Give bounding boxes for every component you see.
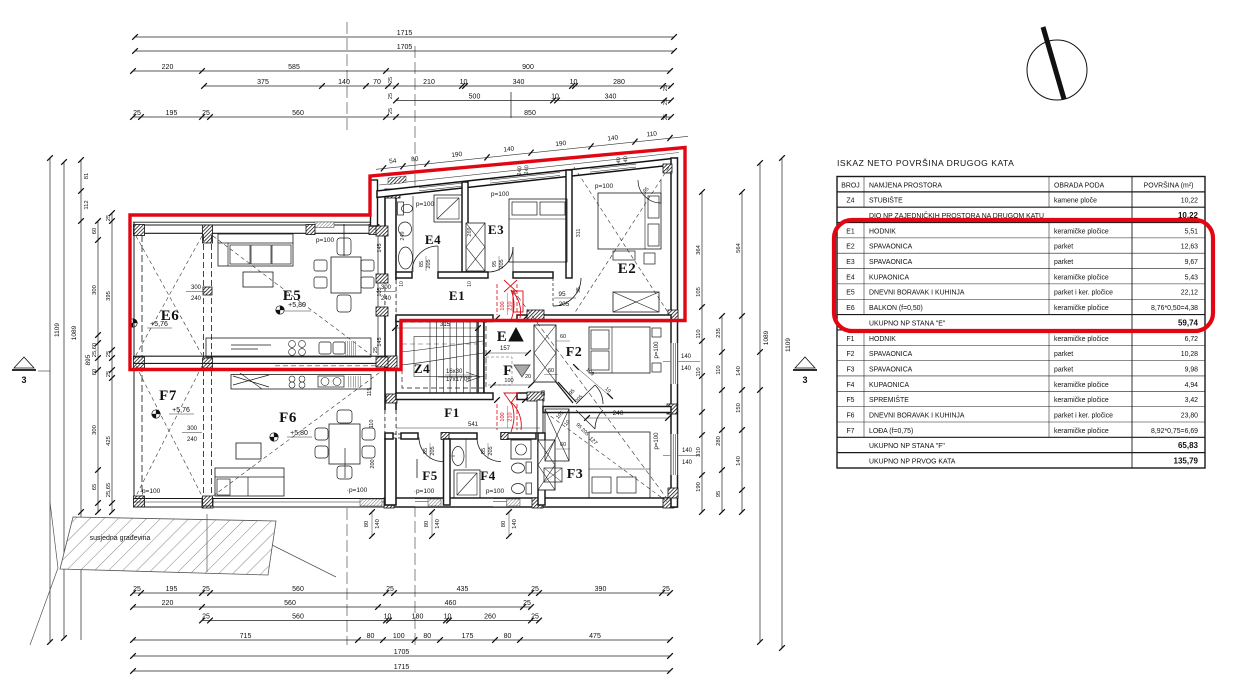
svg-text:395: 395 <box>106 291 112 301</box>
svg-text:9,98: 9,98 <box>1185 366 1199 373</box>
svg-text:280: 280 <box>716 436 722 446</box>
svg-text:E2: E2 <box>846 244 855 251</box>
svg-text:25: 25 <box>202 614 210 621</box>
svg-text:p=100: p=100 <box>416 201 435 208</box>
svg-text:315: 315 <box>440 322 451 328</box>
svg-text:25: 25 <box>388 77 394 83</box>
svg-text:10: 10 <box>444 614 452 621</box>
svg-text:249: 249 <box>400 231 406 240</box>
svg-text:135,79: 135,79 <box>1174 457 1199 466</box>
svg-text:10: 10 <box>551 94 559 101</box>
svg-text:541: 541 <box>468 422 479 428</box>
svg-text:38: 38 <box>541 390 547 396</box>
svg-text:195: 195 <box>166 110 178 117</box>
svg-text:140: 140 <box>375 519 381 529</box>
svg-text:E6: E6 <box>846 305 855 312</box>
svg-text:500: 500 <box>469 94 481 101</box>
svg-text:59,74: 59,74 <box>1178 318 1199 327</box>
svg-text:F: F <box>503 363 513 379</box>
svg-text:F2: F2 <box>566 345 583 360</box>
svg-text:140: 140 <box>607 134 619 142</box>
svg-text:850: 850 <box>524 110 536 117</box>
svg-text:140: 140 <box>682 448 693 454</box>
svg-text:E5: E5 <box>846 290 855 297</box>
svg-text:435: 435 <box>457 586 469 593</box>
svg-text:54: 54 <box>389 158 397 166</box>
svg-text:25: 25 <box>531 586 539 593</box>
svg-text:25: 25 <box>106 351 112 357</box>
svg-text:150: 150 <box>736 403 742 413</box>
svg-text:F1: F1 <box>444 405 459 420</box>
svg-text:60: 60 <box>92 228 98 234</box>
svg-text:BALKON (f=0,50): BALKON (f=0,50) <box>869 305 923 312</box>
svg-text:·p=100: ·p=100 <box>347 487 368 494</box>
svg-text:560: 560 <box>292 614 304 621</box>
svg-text:UKUPNO NP STANA "E": UKUPNO NP STANA "E" <box>869 320 946 327</box>
svg-text:80: 80 <box>423 633 431 640</box>
svg-text:parket: parket <box>1054 244 1073 251</box>
svg-text:1089: 1089 <box>71 325 78 340</box>
svg-text:25: 25 <box>202 110 210 117</box>
svg-text:240: 240 <box>191 296 202 302</box>
svg-text:95: 95 <box>716 491 722 497</box>
svg-text:25: 25 <box>663 85 669 91</box>
svg-text:HODNIK: HODNIK <box>869 336 896 343</box>
svg-text:364: 364 <box>696 244 702 254</box>
svg-text:105: 105 <box>377 287 383 296</box>
svg-text:112: 112 <box>84 200 90 209</box>
svg-text:140: 140 <box>681 354 692 360</box>
svg-text:10,28: 10,28 <box>1181 351 1198 358</box>
svg-text:80: 80 <box>367 633 375 640</box>
svg-text:25: 25 <box>662 586 670 593</box>
svg-text:80: 80 <box>504 633 512 640</box>
svg-text:80: 80 <box>424 521 430 527</box>
svg-text:20: 20 <box>525 374 531 380</box>
svg-text:F1: F1 <box>846 336 854 343</box>
svg-text:1705: 1705 <box>394 649 410 656</box>
svg-text:80: 80 <box>411 156 419 164</box>
svg-text:·p=100: ·p=100 <box>140 488 161 495</box>
svg-text:900: 900 <box>522 64 534 71</box>
svg-text:22,12: 22,12 <box>1181 290 1198 297</box>
svg-text:60: 60 <box>92 369 98 375</box>
svg-text:5,51: 5,51 <box>1185 228 1199 235</box>
svg-text:UKUPNO NP STANA "F": UKUPNO NP STANA "F" <box>869 443 945 450</box>
svg-text:F7: F7 <box>159 388 177 404</box>
svg-text:susjedna građevina: susjedna građevina <box>90 535 151 542</box>
svg-text:23,80: 23,80 <box>1181 412 1198 419</box>
svg-text:5,43: 5,43 <box>1185 274 1199 281</box>
svg-text:190: 190 <box>451 151 463 159</box>
svg-text:205: 205 <box>426 259 432 268</box>
svg-text:80: 80 <box>501 521 507 527</box>
svg-text:KUPAONICA: KUPAONICA <box>869 382 909 389</box>
svg-text:6,72: 6,72 <box>1185 336 1199 343</box>
svg-text:175: 175 <box>462 633 474 640</box>
svg-text:F6: F6 <box>279 410 297 426</box>
svg-text:25,65: 25,65 <box>106 483 112 498</box>
svg-text:10: 10 <box>570 79 578 86</box>
svg-text:205: 205 <box>559 301 570 308</box>
svg-text:240: 240 <box>187 437 198 443</box>
svg-text:F5: F5 <box>422 468 437 483</box>
svg-text:85: 85 <box>481 448 487 454</box>
svg-text:parket i ker. pločice: parket i ker. pločice <box>1054 290 1113 297</box>
svg-text:25: 25 <box>106 371 112 377</box>
svg-text:100: 100 <box>500 412 506 421</box>
svg-text:60: 60 <box>548 368 554 374</box>
svg-text:4,94: 4,94 <box>1185 382 1199 389</box>
svg-text:SPREMIŠTE: SPREMIŠTE <box>869 395 909 404</box>
svg-text:parket: parket <box>1054 259 1073 266</box>
svg-text:475: 475 <box>589 633 601 640</box>
svg-text:POVRŠINA (m²): POVRŠINA (m²) <box>1144 180 1194 189</box>
svg-text:140: 140 <box>512 519 518 529</box>
svg-text:keramičke pločice: keramičke pločice <box>1054 397 1109 404</box>
svg-text:140: 140 <box>736 366 742 376</box>
svg-text:145: 145 <box>377 337 383 346</box>
svg-text:LOĐA (f=0,75): LOĐA (f=0,75) <box>869 428 913 435</box>
svg-text:p=100: p=100 <box>654 341 660 359</box>
svg-text:25: 25 <box>133 110 141 117</box>
svg-text:12,63: 12,63 <box>1181 244 1198 251</box>
svg-text:E4: E4 <box>425 232 441 247</box>
svg-text:300: 300 <box>187 426 198 432</box>
svg-text:16x30: 16x30 <box>446 369 463 375</box>
svg-text:8,76*0,50=4,38: 8,76*0,50=4,38 <box>1151 305 1198 312</box>
svg-text:110: 110 <box>716 365 722 374</box>
svg-text:85: 85 <box>423 448 429 454</box>
svg-text:220: 220 <box>162 600 174 607</box>
svg-text:25: 25 <box>373 347 379 353</box>
svg-text:140: 140 <box>736 456 742 466</box>
svg-text:560: 560 <box>292 586 304 593</box>
svg-text:E: E <box>497 329 508 345</box>
svg-text:E4: E4 <box>846 274 855 281</box>
svg-text:keramičke pločice: keramičke pločice <box>1054 428 1109 435</box>
svg-text:220: 220 <box>162 64 174 71</box>
svg-text:390: 390 <box>595 586 607 593</box>
svg-text:560: 560 <box>284 600 296 607</box>
svg-text:·p=100: ·p=100 <box>414 488 435 495</box>
svg-text:140: 140 <box>524 165 531 175</box>
svg-text:E1: E1 <box>846 228 855 235</box>
svg-text:375: 375 <box>257 79 269 86</box>
svg-text:110: 110 <box>696 329 702 338</box>
svg-text:NAMJENA PROSTORA: NAMJENA PROSTORA <box>869 182 942 189</box>
svg-text:105: 105 <box>696 287 702 297</box>
svg-text:140: 140 <box>338 79 350 86</box>
svg-text:25: 25 <box>388 93 394 99</box>
svg-text:F7: F7 <box>846 428 854 435</box>
svg-text:+5,76: +5,76 <box>150 321 168 328</box>
svg-text:81: 81 <box>84 173 90 179</box>
svg-text:715: 715 <box>240 633 252 640</box>
svg-text:10: 10 <box>460 79 468 86</box>
svg-text:205: 205 <box>499 259 505 268</box>
svg-text:F3: F3 <box>567 467 584 482</box>
svg-text:keramičke pločice: keramičke pločice <box>1054 305 1109 312</box>
svg-text:ISKAZ NETO POVRŠINA DRUGOG KAT: ISKAZ NETO POVRŠINA DRUGOG KATA <box>837 158 1014 168</box>
svg-text:115: 115 <box>367 388 373 397</box>
svg-text:260: 260 <box>484 614 496 621</box>
svg-text:25: 25 <box>106 215 112 221</box>
svg-text:311: 311 <box>576 229 582 238</box>
svg-text:95: 95 <box>576 287 582 293</box>
svg-text:190: 190 <box>696 482 702 492</box>
svg-text:85: 85 <box>419 261 425 267</box>
svg-text:SPAVAONICA: SPAVAONICA <box>869 351 913 358</box>
svg-text:E3: E3 <box>846 259 855 266</box>
svg-text:300: 300 <box>92 285 98 295</box>
svg-text:110: 110 <box>696 367 702 376</box>
svg-text:17x17,06: 17x17,06 <box>446 377 471 383</box>
svg-text:340: 340 <box>513 79 525 86</box>
svg-text:25: 25 <box>663 114 669 120</box>
svg-text:300: 300 <box>191 285 202 291</box>
svg-text:25: 25 <box>531 614 539 621</box>
svg-text:10,22: 10,22 <box>1181 198 1198 205</box>
svg-text:180: 180 <box>412 614 424 621</box>
svg-text:195: 195 <box>166 586 178 593</box>
svg-text:1109: 1109 <box>785 338 792 352</box>
svg-text:+5,76: +5,76 <box>172 407 190 414</box>
svg-text:460: 460 <box>445 600 457 607</box>
svg-text:145: 145 <box>377 243 383 252</box>
svg-text:25: 25 <box>523 600 531 607</box>
svg-text:DNEVNI BORAVAK I KUHINJA: DNEVNI BORAVAK I KUHINJA <box>869 412 965 419</box>
svg-text:parket i ker. pločice: parket i ker. pločice <box>1054 412 1113 419</box>
svg-text:100: 100 <box>393 633 405 640</box>
svg-text:200: 200 <box>370 459 376 468</box>
svg-text:1109: 1109 <box>54 323 61 337</box>
svg-text:Z4: Z4 <box>846 198 854 205</box>
svg-text:UKUPNO NP PRVOG KATA: UKUPNO NP PRVOG KATA <box>869 459 956 466</box>
svg-text:F2: F2 <box>846 351 854 358</box>
svg-text:3: 3 <box>802 375 807 385</box>
svg-text:110: 110 <box>369 420 375 429</box>
svg-text:210: 210 <box>508 301 514 310</box>
svg-text:3: 3 <box>21 375 26 385</box>
svg-text:1715: 1715 <box>394 664 410 671</box>
svg-text:70: 70 <box>373 79 381 86</box>
svg-text:140: 140 <box>682 460 693 466</box>
svg-text:keramičke pločice: keramičke pločice <box>1054 382 1109 389</box>
svg-text:60: 60 <box>560 442 566 448</box>
svg-text:95: 95 <box>558 291 566 298</box>
svg-text:kamene ploče: kamene ploče <box>1054 198 1097 205</box>
svg-text:p=100: p=100 <box>491 191 510 198</box>
svg-text:25: 25 <box>388 108 394 114</box>
svg-text:60: 60 <box>560 334 566 340</box>
svg-text:100: 100 <box>504 378 513 384</box>
svg-text:205: 205 <box>488 446 494 455</box>
svg-text:895: 895 <box>85 354 92 365</box>
svg-text:p=100: p=100 <box>486 488 505 495</box>
svg-text:1715: 1715 <box>397 30 413 37</box>
svg-text:140: 140 <box>435 519 441 529</box>
svg-text:KUPAONICA: KUPAONICA <box>869 274 909 281</box>
svg-text:25,60: 25,60 <box>92 343 98 358</box>
svg-text:205: 205 <box>430 446 436 455</box>
svg-text:560: 560 <box>292 110 304 117</box>
svg-text:3,42: 3,42 <box>1185 397 1199 404</box>
svg-text:8,92*0,75=6,69: 8,92*0,75=6,69 <box>1151 428 1198 435</box>
svg-text:140: 140 <box>503 145 515 153</box>
svg-text:65: 65 <box>92 484 98 490</box>
svg-text:OBRADA PODA: OBRADA PODA <box>1054 182 1105 189</box>
svg-text:parket: parket <box>1054 351 1073 358</box>
svg-text:+5,80: +5,80 <box>288 302 306 309</box>
svg-text:25: 25 <box>202 586 210 593</box>
svg-text:425: 425 <box>106 436 112 446</box>
svg-text:564: 564 <box>736 242 742 252</box>
svg-text:HODNIK: HODNIK <box>869 228 896 235</box>
svg-text:SPAVAONICA: SPAVAONICA <box>869 244 913 251</box>
svg-text:9,67: 9,67 <box>1185 259 1199 266</box>
svg-text:25: 25 <box>133 586 141 593</box>
svg-text:1705: 1705 <box>397 44 413 51</box>
svg-text:95: 95 <box>492 261 498 267</box>
svg-text:F6: F6 <box>846 412 854 419</box>
svg-text:E1: E1 <box>449 288 465 303</box>
svg-text:F3: F3 <box>846 366 854 373</box>
svg-text:235: 235 <box>716 328 722 338</box>
svg-text:p=100: p=100 <box>316 237 335 244</box>
svg-text:300: 300 <box>92 425 98 435</box>
svg-text:240: 240 <box>613 410 624 417</box>
svg-text:10: 10 <box>384 614 392 621</box>
svg-text:parket: parket <box>1054 366 1073 373</box>
svg-text:BROJ: BROJ <box>841 182 859 189</box>
svg-text:1089: 1089 <box>763 330 770 345</box>
svg-text:F4: F4 <box>480 468 495 483</box>
svg-text:210: 210 <box>423 79 435 86</box>
svg-text:10: 10 <box>467 281 473 287</box>
svg-text:E3: E3 <box>488 222 504 237</box>
svg-text:keramičke pločice: keramičke pločice <box>1054 274 1109 281</box>
svg-text:65,83: 65,83 <box>1178 441 1199 450</box>
svg-text:190: 190 <box>555 140 567 148</box>
svg-text:100: 100 <box>500 301 506 310</box>
svg-text:DNEVNI BORAVAK I KUHINJA: DNEVNI BORAVAK I KUHINJA <box>869 290 965 297</box>
svg-text:157: 157 <box>500 346 511 352</box>
svg-text:140: 140 <box>681 366 692 372</box>
svg-text:25: 25 <box>663 99 669 105</box>
svg-text:keramičke pločice: keramičke pločice <box>1054 228 1109 235</box>
svg-text:80: 80 <box>364 521 370 527</box>
svg-text:p=100: p=100 <box>654 432 660 450</box>
svg-text:SPAVAONICA: SPAVAONICA <box>869 366 913 373</box>
svg-text:+5,80: +5,80 <box>290 430 308 437</box>
svg-text:340: 340 <box>605 94 617 101</box>
svg-text:SPAVAONICA: SPAVAONICA <box>869 259 913 266</box>
svg-text:210: 210 <box>508 412 514 421</box>
svg-text:keramičke pločice: keramičke pločice <box>1054 336 1109 343</box>
svg-text:25: 25 <box>386 586 394 593</box>
svg-text:F4: F4 <box>846 382 854 389</box>
svg-text:F5: F5 <box>846 397 854 404</box>
svg-text:110: 110 <box>646 130 657 138</box>
svg-text:E2: E2 <box>618 261 637 277</box>
svg-text:269: 269 <box>467 227 473 236</box>
svg-text:280: 280 <box>613 79 625 86</box>
svg-text:p=100: p=100 <box>595 183 614 190</box>
svg-text:STUBIŠTE: STUBIŠTE <box>869 196 903 205</box>
svg-text:10: 10 <box>399 281 405 287</box>
svg-text:585: 585 <box>288 64 300 71</box>
